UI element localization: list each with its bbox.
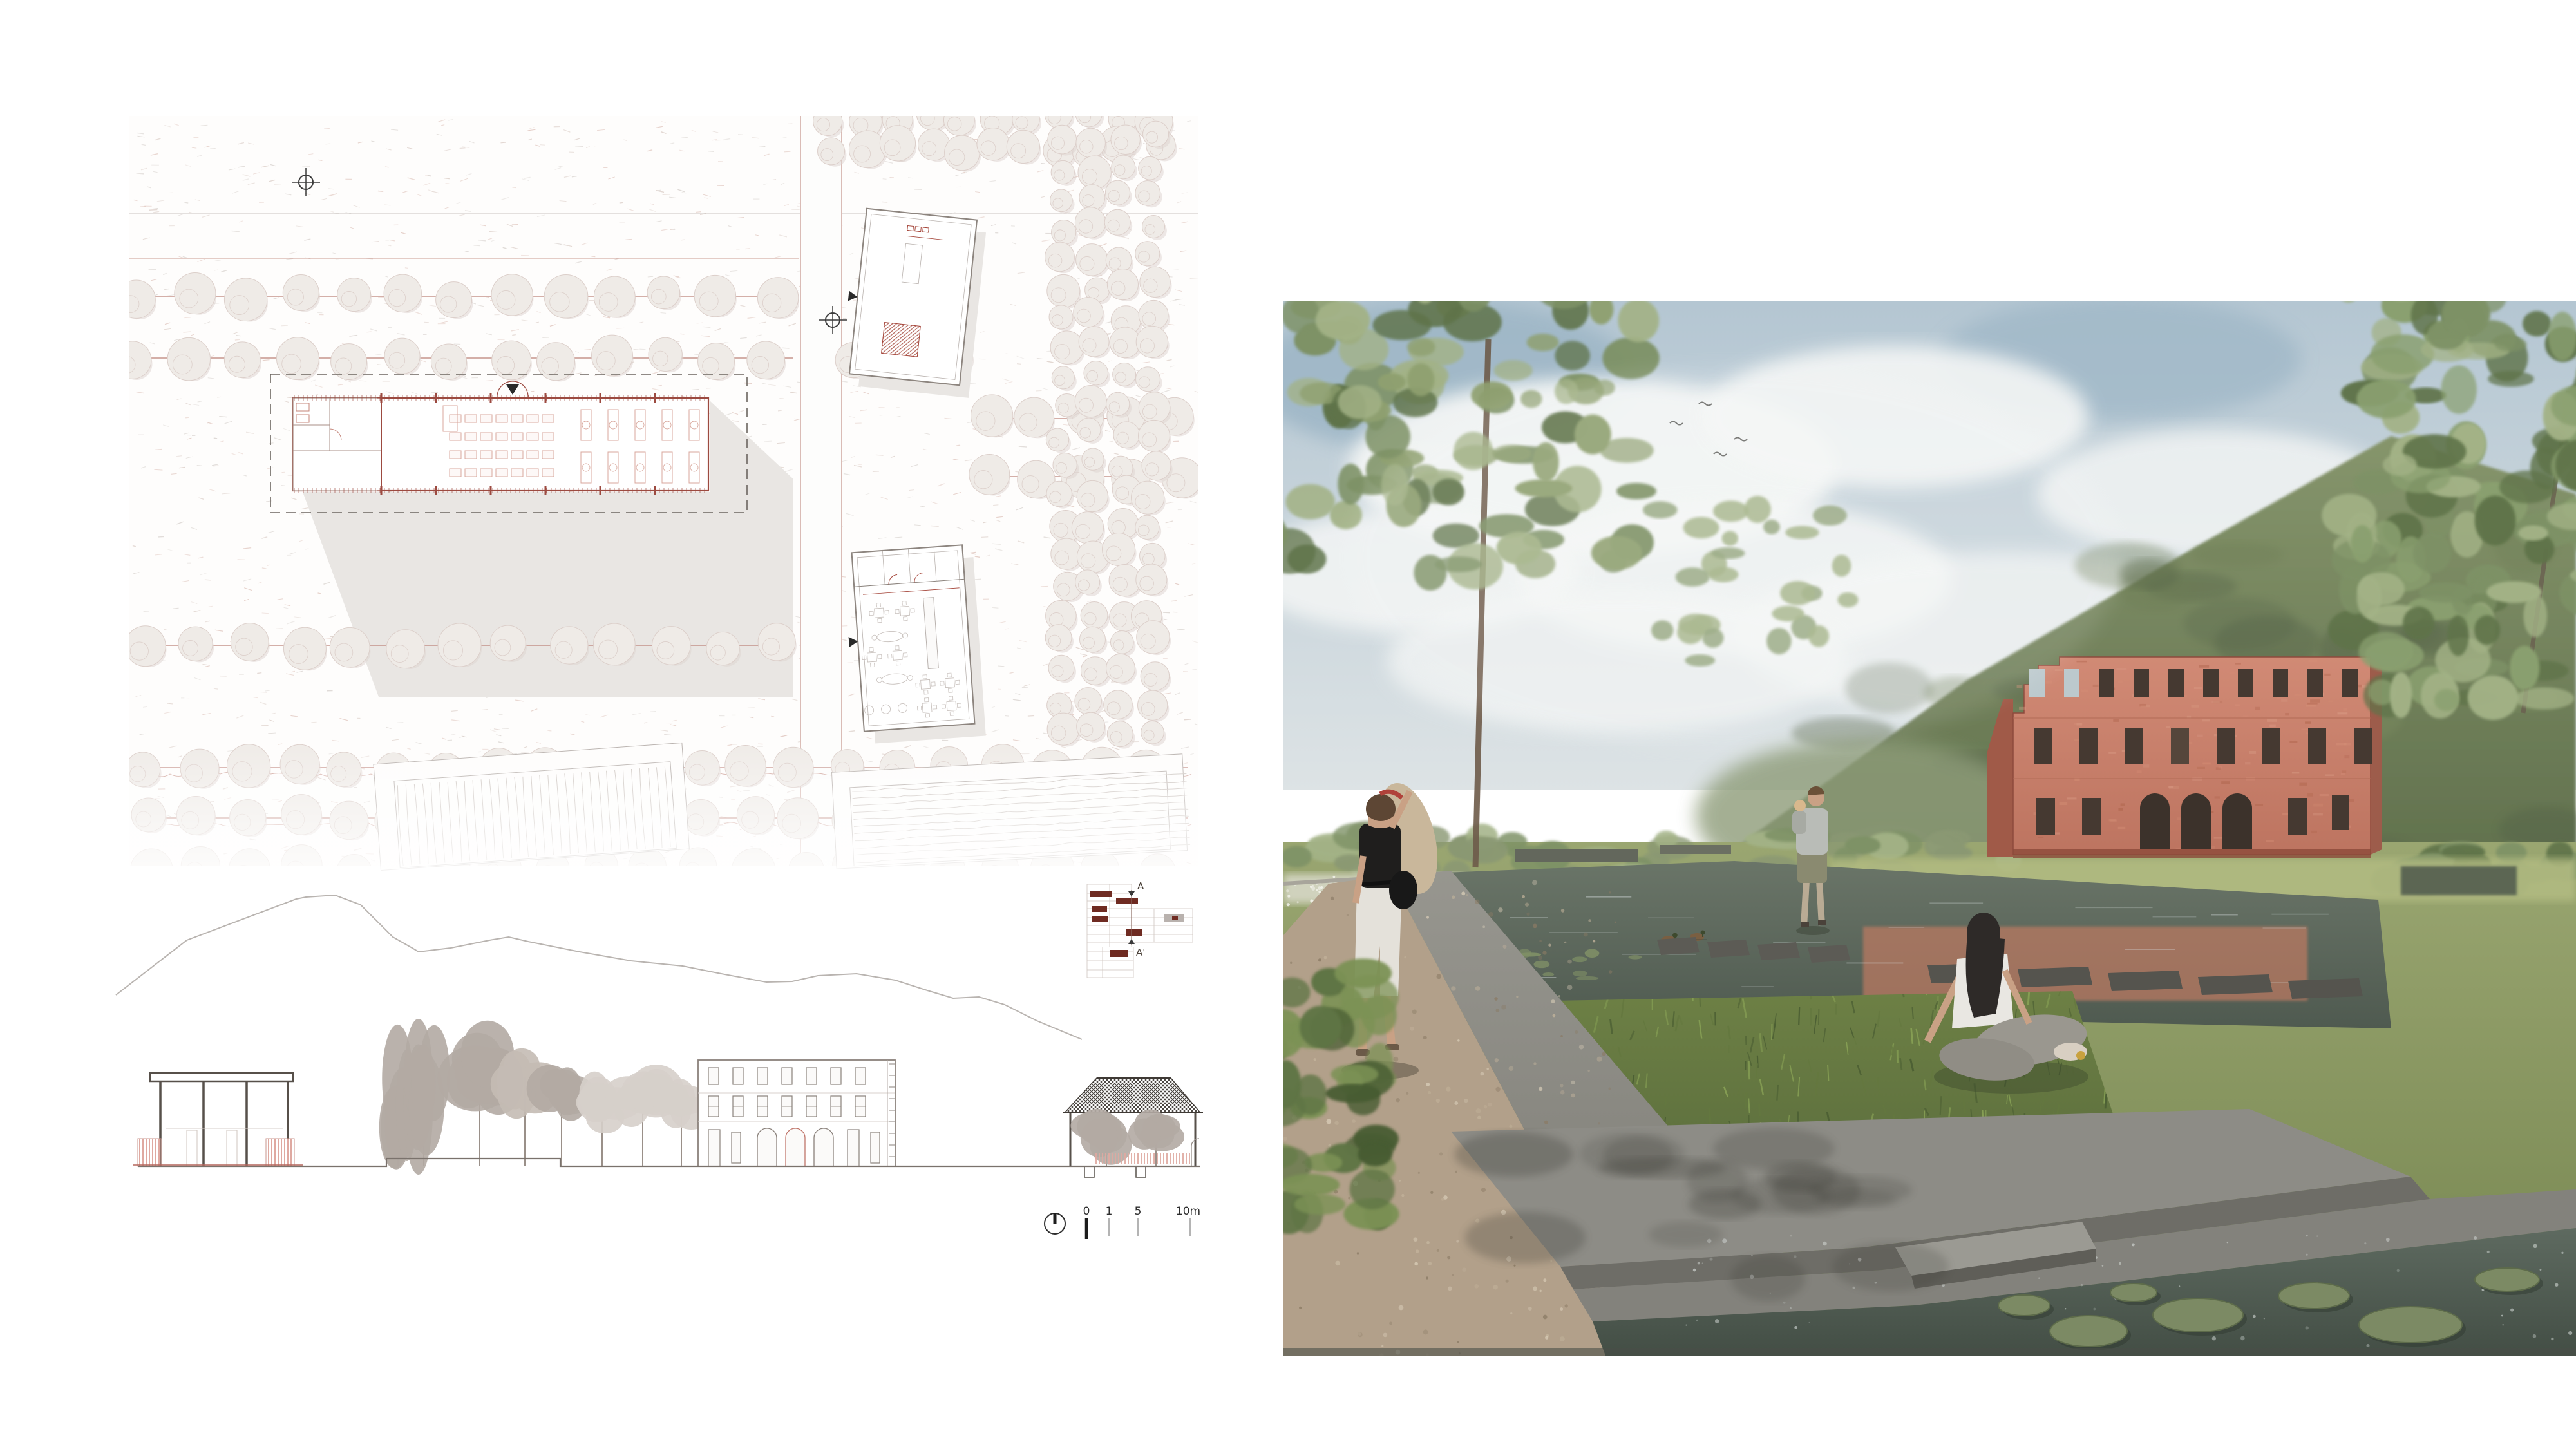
mountain-skyline [116, 895, 1082, 1039]
hedge-block [2401, 866, 2517, 895]
section-label-end: A' [1136, 947, 1145, 958]
elevation-roofed-pavilion [1063, 1078, 1203, 1177]
scale-tick-label-0: 0 [1083, 1205, 1090, 1218]
scale-tick-label-1: 1 [1106, 1205, 1113, 1218]
brick-ruin-building [1987, 657, 2382, 858]
elevation-building-facade [698, 1060, 895, 1166]
scale-bar: 0 1 5 10m [1045, 1205, 1200, 1239]
section-label-start: A [1137, 880, 1144, 892]
concrete-bench [1515, 849, 1638, 862]
cafe-building-plan [843, 544, 986, 744]
north-arrow-icon [1045, 1213, 1065, 1234]
section-pavilion [133, 1073, 303, 1166]
key-map-buildings [1090, 891, 1142, 957]
elevation-trees [379, 1019, 712, 1175]
site-plan-sheet: A A' 0 1 5 10m [0, 0, 1288, 1449]
scale-tick-label-5: 5 [1135, 1205, 1142, 1218]
concrete-bench [1660, 845, 1731, 854]
section-elevation [133, 1019, 1203, 1177]
architectural-render [1283, 301, 2576, 1356]
scale-tick-label-10m: 10m [1176, 1205, 1200, 1218]
presentation-board: A A' 0 1 5 10m [0, 0, 2576, 1449]
plan-fade [129, 741, 1198, 895]
